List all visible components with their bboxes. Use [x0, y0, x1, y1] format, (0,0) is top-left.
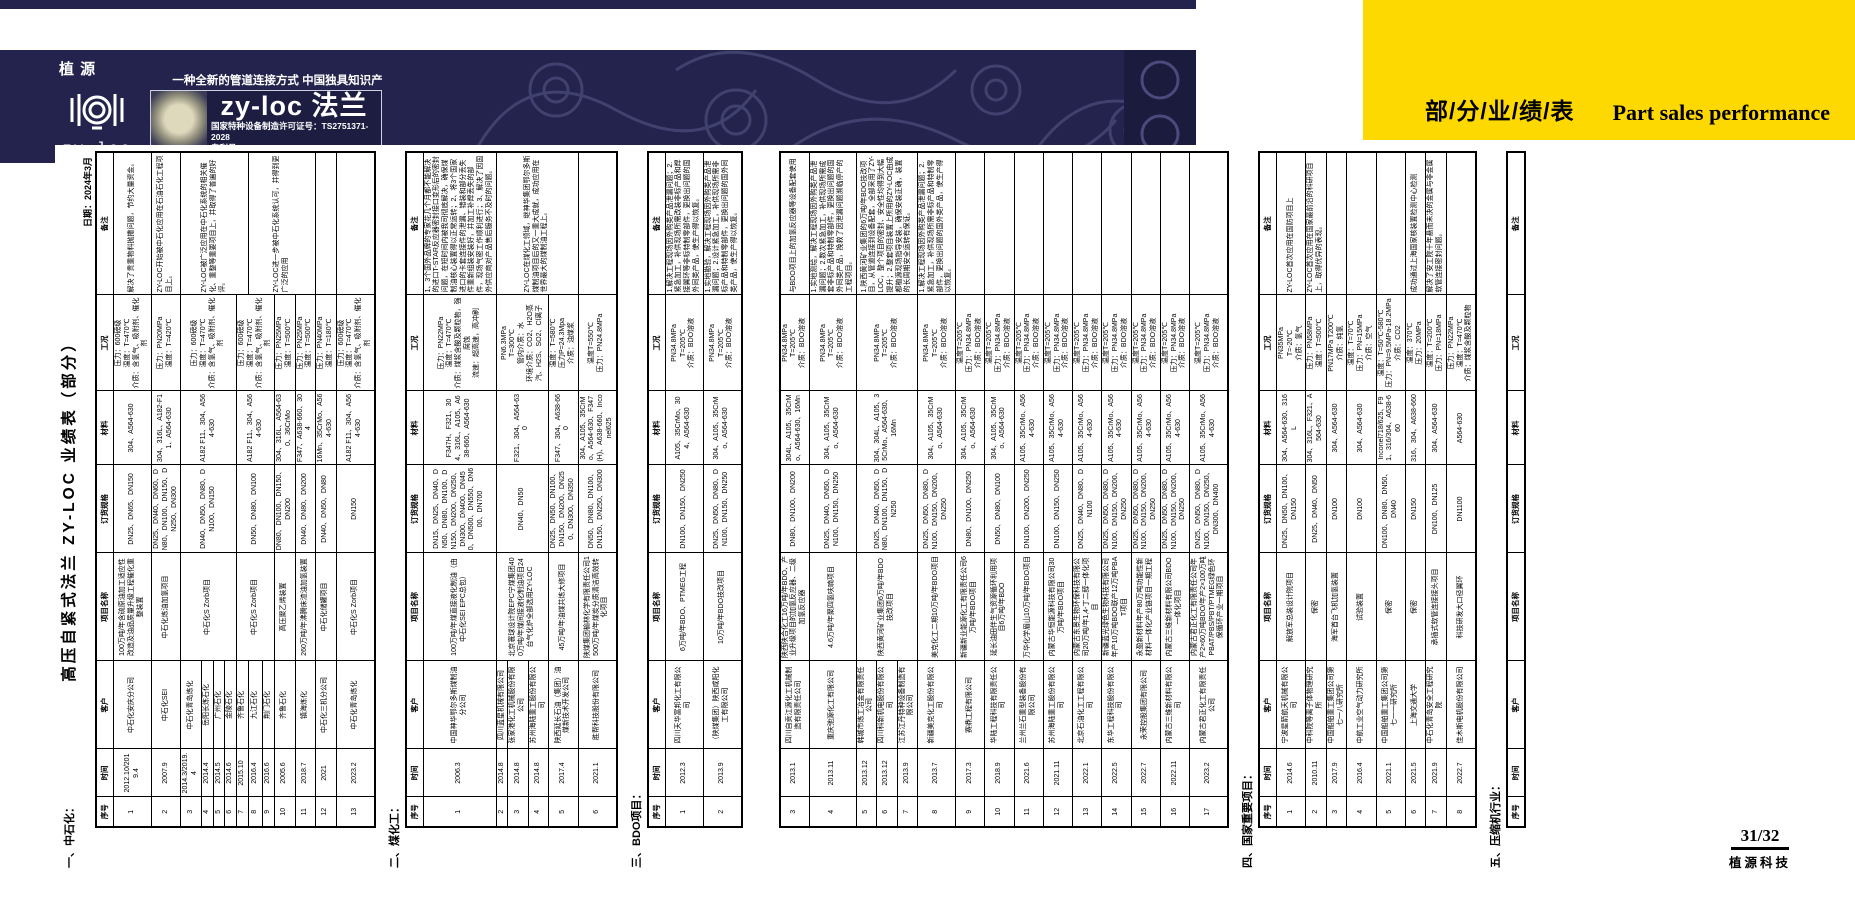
table-row: 172023.2内蒙古君正化工有限责任公司内蒙古君正化工有限责任公司年产2×60… [1190, 152, 1229, 827]
table-cell: 8 [918, 797, 956, 827]
table-cell: PN6.3MPa T=300℃ 管内介质：水 环境介质：CO2、H2O蒸汽、H2… [496, 295, 549, 391]
performance-table-3: 序号时间客户项目名称订货规格材料工况备注12012.3四川天华富邦化工有限公司6… [647, 151, 743, 828]
page: 植 源 zy-loc 一种全新的管道连接方式 中国独具知识产权的产品 zy-lo… [0, 0, 1855, 901]
table-cell: DN100 [1347, 465, 1376, 553]
table-cell: 4 [1347, 797, 1376, 827]
table-cell: 4 [528, 797, 549, 827]
table-cell: DN25、DN50、DN80、DN100、DN150、DN200、DN250 [1131, 465, 1160, 553]
table-cell: 1 [423, 797, 496, 827]
table-cell: A105、35CrMo、A564-630 [1073, 391, 1102, 465]
section-heading-4: 四、国家重要项目： [1239, 145, 1255, 868]
table-cell: 延长油田伴生气资源循环利用项目6万吨/年BDO [985, 553, 1014, 661]
table-cell: 11 [295, 797, 316, 827]
table-cell: 东华工程科技股份有限公司 [1102, 661, 1131, 749]
table-cell: A564-630 [1446, 391, 1476, 465]
table-row: 52021.1中国船舶重工集团公司第七一一研究所保密DN100、DN80、DN5… [1376, 152, 1405, 827]
table-cell: DN25、DN50、DN100、DN150、DN200、DN250、DN300、… [549, 465, 578, 553]
table-cell: PN34.8MPa T=205℃ 介质：BDO溶液 [856, 295, 918, 391]
table-cell: A182 F11、304、A564-630 [181, 391, 237, 465]
table-cell: 2017.9 [1326, 749, 1347, 797]
table-row: 62021.1胜帮科技股份有限公司陕煤集团榆林化学有限责任公司1500万吨/年煤… [578, 152, 617, 827]
column-header: 工况 [648, 295, 666, 391]
column-header: 订货规格 [406, 465, 424, 553]
table-cell: 2014.5 [213, 749, 225, 797]
table-cell: 1.实地测绘，解决工程现场因外购类产品泄漏问题；2.数次紧急加工，补供现场所需成… [809, 152, 856, 295]
table-cell [1326, 152, 1347, 295]
table-cell: 14 [1102, 797, 1131, 827]
section-tab: 部/分/业/绩/表 Part sales performance [1363, 0, 1855, 140]
table-cell: 304、A105、35CrMo、A564-630、F347(H)、A638-66… [578, 391, 617, 465]
table-cell: 与BDO项目上的加氢反应器等设备配套使用 [780, 152, 810, 295]
table-cell: DN50、DN80、DN100 [985, 465, 1014, 553]
table-cell: 齐鲁石化 [237, 661, 249, 749]
table-cell: DN25、DN40、DN60、DN80、DN100、DN150、DN250、DN… [152, 465, 181, 553]
table-cell: 科技研发大口径翼环 [1446, 553, 1476, 661]
table-cell: 2013.1 [780, 749, 810, 797]
table-cell: 8 [248, 797, 263, 827]
performance-table-5: 序号时间客户项目名称订货规格材料工况备注 [1506, 151, 1526, 828]
table-cell: 2022.11 [1160, 749, 1189, 797]
table-cell: 中石化S Zorb项目 [336, 553, 375, 661]
table-cell: DN25、DN40、DN50、DN80、DN100、DN150、DN250 [856, 465, 918, 553]
table-cell: DN100、DN200、DN250 [1014, 465, 1043, 553]
column-header: 项目名称 [1507, 553, 1525, 661]
table-row: 162022.11内蒙古三维新材料有限公司内蒙古三维新材料有限公司BDO一体化项… [1160, 152, 1189, 827]
table-cell: 中石化青岛炼化 [181, 661, 202, 749]
table-cell: 赛鼎工程有限公司 [956, 661, 985, 749]
section-tab-en: Part sales performance [1613, 100, 1830, 126]
table-cell: 304、316L、A564-630、36CrMo [275, 391, 296, 465]
table-cell: DN80、DN100、DN150、DN200 [275, 465, 296, 553]
page-break-gap [745, 145, 779, 870]
table-cell: 压力：PN58MPa 温度：T=500℃ [1306, 295, 1327, 391]
table-cell: 2014.8 [528, 749, 549, 797]
table-cell: 四川天华富邦化工有限公司 [665, 661, 703, 749]
column-header: 项目名称 [1259, 553, 1277, 661]
table-cell: F321、304、A564-630 [496, 391, 549, 465]
table-cell: 17 [1190, 797, 1229, 827]
table-cell: 压力：PN22MPa 温度：T=470℃ 介质：煤浆含酸及颗粒物 [1446, 295, 1476, 391]
table-cell: 温度T=550℃ 压力：PN24.8MPa [578, 295, 617, 391]
table-cell: PN34.8MPa T=205℃ 介质：BDO溶液 [703, 295, 742, 391]
table-cell: 2018.9 [985, 749, 1014, 797]
table-cell: 2013.12 [856, 749, 877, 797]
table-cell: A105、35CrMo、A564-630 [1102, 391, 1131, 465]
table-cell: 2023.2 [1190, 749, 1229, 797]
table-cell: DN15、DN25、DN40、DN50、DN80、DN100、DN150、DN2… [423, 465, 496, 553]
table-cell: 7 [237, 797, 249, 827]
table-cell: 内蒙古君正化工有限责任公司 [1190, 661, 1229, 749]
section-heading-3: 三、BDO项目： [628, 145, 644, 868]
table-cell: 6 [578, 797, 617, 827]
table-cell: 永荣控股集团有限公司 [1131, 661, 1160, 749]
table-cell: （陕煤集团）陕西咸阳化工有限公司 [703, 661, 742, 749]
table-cell: 3 [1326, 797, 1347, 827]
table-cell: DN1100 [1446, 465, 1476, 553]
table-cell: 张家港化工机械股份有限公司 [508, 661, 529, 749]
table-cell: 温度：T=70℃ 压力：PN=15MPa 介质：空气 [1347, 295, 1376, 391]
column-header: 时间 [406, 749, 424, 797]
table-cell: PN34.8MPa T=205℃ 介质：BDO溶液 [780, 295, 810, 391]
table-row: 12014.6宁波星箭航天机械有限公司解放军总装设计院项目DN25、DN50、D… [1277, 152, 1306, 827]
table-cell: 温度T=205℃ 压力：PN34.8MPa 介质：BDO溶液 [1190, 295, 1229, 391]
table-cell: 内蒙古东景生物环保科技有限公司20万吨/年1,4-丁二醇一体化项目 [1073, 553, 1102, 661]
table-cell: 1 [1277, 797, 1306, 827]
header-row: 序号时间客户项目名称订货规格材料工况备注 [1507, 152, 1525, 827]
table-cell: DN25、DN40、DN50 [1306, 465, 1327, 553]
table-cell: 2022.5 [1102, 749, 1131, 797]
table-cell: 苏州海陆重工股份有限公司 [1043, 661, 1072, 749]
table-row: 82013.7新疆美克化工股份有限公司美克化工二期10万吨/年BDO项目DN25… [918, 152, 956, 827]
table-cell: 压力：PN25MPa 温度：T=500℃ [295, 295, 316, 391]
flange-symbol-icon [68, 90, 126, 130]
table-cell: 中国船舶重工集团公司第七一八研究所 [1326, 661, 1347, 749]
table-cell: DN100、DN80、DN50、DN40 [1376, 465, 1405, 553]
table-cell [1347, 152, 1376, 295]
brand-title: zy-loc 法兰 [220, 91, 367, 121]
table-cell: 2013.9 [703, 749, 742, 797]
column-header: 工况 [1259, 295, 1277, 391]
table-cell: Inconel718/625、F91、316/304、A638-660 [1376, 391, 1405, 465]
header-row: 序号时间客户项目名称订货规格材料工况备注 [406, 152, 424, 827]
table-cell: 2014.8 [496, 749, 508, 797]
table-cell: 1.实地勘验，解决工程现场因外购类产品泄漏问题；2.设计紧急加工，补供现场所需非… [703, 152, 742, 295]
table-cell: 45万吨/年油煤共炼大修项目 [549, 553, 578, 661]
table-cell: 岳阳长炼石化 [201, 661, 213, 749]
table-cell: 压力：PN22MPa 温度：T=470℃ 介质：煤浆含酸及颗粒物，强腐蚀 流速：… [423, 295, 496, 391]
table-cell: 中石化S Zorb项目 [237, 553, 275, 661]
table-row: 112021.6兰州兰石重型装备股份有限公司万华化学眉山10万吨/年BDO项目D… [1014, 152, 1043, 827]
table-row: 82022.7佳木斯电机股份有限公司科技研发大口径翼环DN1100A564-63… [1446, 152, 1476, 827]
table-cell: 13 [1073, 797, 1102, 827]
table-cell: 5 [1376, 797, 1405, 827]
table-cell: 2014.3/2019.4 [181, 749, 202, 797]
table-cell: 304、A564-630 [1347, 391, 1376, 465]
table-cell: ZY-LOC首次应用在国防项目上 [1277, 152, 1306, 295]
table-row: 122021.11苏州海陆重工股份有限公司内蒙古华恒能源科技有限公司30万吨/年… [1043, 152, 1072, 827]
table-cell: 6 [225, 797, 237, 827]
table-row: 152022.7永荣控股集团有限公司永盈新材料年产80万吨功能性新材料一体化产业… [1131, 152, 1160, 827]
table-cell: 温度：T=50℃-580℃ 压力：PN=9.5MPa-18.2MPa 介质：CO… [1376, 295, 1405, 391]
table-cell: 6万吨/年BDO、PTMEG工程 [665, 553, 703, 661]
table-cell: 温度T=205℃ 压力：PN34.8MPa 介质：BDO溶液 [1073, 295, 1102, 391]
flange-product-photo [151, 91, 207, 153]
table-cell: 广州石化 [213, 661, 225, 749]
table-cell: 2006.3 [423, 749, 496, 797]
table-cell: DN25、DN50、DN80、DN100、DN150、DN250 [703, 465, 742, 553]
table-cell: 2012.10/2019.4 [114, 749, 152, 797]
table-cell: 保密 [1376, 553, 1405, 661]
table-cell: 解放军总装设计院项目 [1277, 553, 1306, 661]
table-cell [956, 152, 985, 295]
table-cell: DN100 [1326, 465, 1347, 553]
table-cell: 保密 [1306, 553, 1327, 661]
table-cell: 压力：600磅级 温度：T=470℃ 介质：含氢气、吸附剂、催化剂 [336, 295, 375, 391]
table-cell: 陕西黄河矿业集团6万吨/年BDO技改项目 [856, 553, 918, 661]
table-row: 132023.2中石化青岛炼化中石化S Zorb项目DN150A182 F11、… [336, 152, 375, 827]
table-row: 22014.8四川蓝星机械有限公司北京寰球设计院EPC宁煤集团400万吨/年煤间… [496, 152, 508, 827]
table-cell: 温度：370℃ 压力：20MPa [1405, 295, 1426, 391]
table-cell: 10 [275, 797, 296, 827]
table-cell: 解决了贵重物料抛撒问题，节约大量资金。 [114, 152, 152, 295]
table-cell: 2014.4 [201, 749, 213, 797]
header-row: 序号时间客户项目名称订货规格材料工况备注 [648, 152, 666, 827]
table-cell: 兰州兰石重型装备股份有限公司 [1014, 661, 1043, 749]
table-cell: 四川自贡江源化工机械制造有限责任公司 [780, 661, 810, 749]
header-row: 序号时间客户项目名称订货规格材料工况备注 [1259, 152, 1277, 827]
table-cell: 1、3个国外品牌的专家花几个月都不能解决的进口T-STAR反应器密封接口变形后的… [423, 152, 496, 295]
table-cell: 316、304、A638-660 [1405, 391, 1426, 465]
table-cell: 2014.8 [508, 749, 529, 797]
table-cell: PN34.8MPa T=205℃ 介质：BDO溶液 [809, 295, 856, 391]
column-header: 备注 [648, 152, 666, 295]
table-cell: 中石化三机分公司 [316, 661, 337, 749]
table-row: 92017.3赛鼎工程有限公司新疆新业能源化工有限责任公司6万吨/年BDO项目D… [956, 152, 985, 827]
table-cell: 304、A564-630 [114, 391, 152, 465]
table-cell: 5 [549, 797, 578, 827]
table-cell: 韩城市炼工冶金有限责任公司 [856, 661, 877, 749]
section-heading-5: 五、压缩机行业： [1487, 145, 1503, 868]
table-cell: 温度T=205℃ 压力：PN34.8MPa 介质：BDO溶液 [1043, 295, 1072, 391]
tables-container: 序号时间客户项目名称订货规格材料工况备注12012.10/2019.4中石化安庆… [95, 145, 1526, 870]
table-cell: PN35MPa T=-20℃ 介质：氢气 [1277, 295, 1306, 391]
table-cell: 压力：600磅级 温度：T=470℃ 介质：含氢气、吸附剂、催化剂 [114, 295, 152, 391]
page-number: 31/32 [1731, 826, 1790, 850]
table-row: 132022.1北京石油化工工程有限公司内蒙古东景生物环保科技有限公司20万吨/… [1073, 152, 1102, 827]
table-cell: 304L、A105、35CrMo、A564-630、16Mn [780, 391, 810, 465]
performance-table-2: 序号时间客户项目名称订货规格材料工况备注12006.3中国神华鄂尔多斯煤制油分公… [405, 151, 618, 828]
table-cell: 中石化青岛安全工程研究院 [1426, 661, 1447, 749]
table-cell: 荆门石化 [263, 661, 275, 749]
column-header: 时间 [96, 749, 114, 797]
table-cell: 压力：600磅级 温度：T=470℃ 介质：含氢气、吸附剂、催化剂 [181, 295, 237, 391]
table-cell [1131, 152, 1160, 295]
table-cell: DN80、DN100、DN200 [780, 465, 810, 553]
document-canvas: 一、中石化： 高压自紧式法兰 ZY-LOC 业绩表（部分） 日期：2024年3月… [55, 145, 1850, 870]
table-cell [1190, 152, 1229, 295]
column-header: 客户 [96, 661, 114, 749]
table-cell [1446, 152, 1476, 295]
table-cell: A182 F11、304、A564-630 [237, 391, 275, 465]
table-cell: 304、A564-630 [1326, 391, 1347, 465]
section-heading-2: 二、煤化工： [386, 145, 402, 868]
table-cell: 承插式软管连接接头项目 [1426, 553, 1447, 661]
table-cell: 压力：600磅级 温度：T=470℃ 介质：含氢气、吸附剂、催化剂 [237, 295, 275, 391]
table-cell: 2 [1306, 797, 1327, 827]
table-cell: 2021 [316, 749, 337, 797]
table-cell: 304、A105、35CrMo、A564-630 [956, 391, 985, 465]
table-cell: 304、A564-630、316L [1277, 391, 1306, 465]
table-row: 12012.10/2019.4中石化安庆分公司100万吨/年含硫原油加工适应性改… [114, 152, 152, 827]
table-cell: 2013.12 [877, 749, 898, 797]
table-cell: 8 [1446, 797, 1476, 827]
table-cell: 温度T=205℃ 压力：PN34.8MPa 介质：BDO溶液 [956, 295, 985, 391]
table-cell: DN80、DN100、DN250 [956, 465, 985, 553]
table-cell: DN100、DN125 [1426, 465, 1447, 553]
table-cell: 5 [213, 797, 225, 827]
table-cell: 2014.6 [1277, 749, 1306, 797]
table-cell: 内蒙古三维新材料有限公司BDO一体化项目 [1160, 553, 1189, 661]
table-cell: 4 [809, 797, 856, 827]
table-cell: 四川科新机电股份有限公司 [877, 661, 898, 749]
table-cell: 12 [316, 797, 337, 827]
license-line: 国家特种设备制造许可证号：TS2751371-2028 [207, 121, 381, 143]
column-header: 序号 [406, 797, 424, 827]
top-edge-strip [0, 0, 1196, 9]
table-cell: 2021.1 [578, 749, 617, 797]
table-cell: DN40、DN80、DN200 [295, 465, 316, 553]
table-cell: 江苏江丹特种设备制造有限公司 [897, 661, 918, 749]
table-cell: 温度T=205℃ 压力：PN34.8MPa 介质：BDO溶液 [985, 295, 1014, 391]
table-cell: 1.解决工程现场因外购类产品泄漏问题；2.紧急加工，补供现场所需改装非标产品和焊… [665, 152, 703, 295]
table-cell: DN25、DN40、DN50、DN100、DN150、DN250 [809, 465, 856, 553]
table-cell: 2021.11 [1043, 749, 1072, 797]
table-cell: 宁波星箭航天机械有限公司 [1277, 661, 1306, 749]
column-header: 客户 [1259, 661, 1277, 749]
column-header: 项目名称 [406, 553, 424, 661]
column-header: 工况 [406, 295, 424, 391]
table-cell: 新疆美克化工股份有限公司 [918, 661, 956, 749]
table-row: 42013.11重庆弛源化工有限公司4.6万吨/年聚四氢呋喃项目DN25、DN4… [809, 152, 856, 827]
table-cell: 2021.9 [1426, 749, 1447, 797]
table-cell: 100万吨/年煤直接液化制油（由中石化SEI EPC总包） [423, 553, 496, 661]
table-row: 22007.9中石化SEI中石化炼油加氢项目DN25、DN40、DN60、DN8… [152, 152, 181, 827]
column-header: 工况 [96, 295, 114, 391]
table-cell: DN25、DN50、DN80、DN100、DN150、DN200、DN250 [1102, 465, 1131, 553]
table-cell: A105、35CrMo、A564-630 [1014, 391, 1043, 465]
table-cell: 1 [665, 797, 703, 827]
table-cell: 260万吨/年沸腾床渣油加氢装置 [295, 553, 316, 661]
table-cell: 温度T=205℃ 压力：PN34.8MPa 介质：BDO溶液 [1131, 295, 1160, 391]
column-header: 订货规格 [96, 465, 114, 553]
table-cell: 7 [1426, 797, 1447, 827]
table-cell: 上海交通大学 [1405, 661, 1426, 749]
column-header: 备注 [406, 152, 424, 295]
logo-cn-text: 植 源 [59, 58, 135, 79]
table-cell: PN34.8MPa T=205℃ 介质：BDO溶液 [665, 295, 703, 391]
column-header: 备注 [1259, 152, 1277, 295]
table-cell: 美克化工二期10万吨/年BDO项目 [918, 553, 956, 661]
table-cell: 2022.7 [1131, 749, 1160, 797]
table-cell: 九江石化 [248, 661, 263, 749]
table-cell: ZY-LOC开始被中石化应用在石油石化工程项目上。 [152, 152, 181, 295]
table-cell [578, 152, 617, 295]
table-cell: 镇海炼化 [295, 661, 316, 749]
table-row: 32017.9中国船舶重工集团公司第七一八研究所海军首台飞机加氢装置DN1003… [1326, 152, 1347, 827]
column-header: 时间 [1507, 749, 1525, 797]
column-header: 工况 [1507, 295, 1525, 391]
table-row: 12012.3四川天华富邦化工有限公司6万吨/年BDO、PTMEG工程DN100… [665, 152, 703, 827]
table-cell: 中国神华鄂尔多斯煤制油分公司 [423, 661, 496, 749]
table-cell: 2017.3 [956, 749, 985, 797]
table-cell: 304、A105、35CrMo、A564-630 [985, 391, 1014, 465]
table-cell: 保密 [1405, 553, 1426, 661]
table-cell: 3 [181, 797, 202, 827]
table-cell [1043, 152, 1072, 295]
table-cell: 2018.7 [295, 749, 316, 797]
table-cell: 温度T=205℃ 压力：PN34.8MPa 介质：BDO溶液 [1160, 295, 1189, 391]
table-row: 22010.11中科院等离子体物理研究所保密DN25、DN40、DN50304、… [1306, 152, 1327, 827]
table-cell [1073, 152, 1102, 295]
table-cell: DN100、DN150、DN250 [665, 465, 703, 553]
table-row: 62021.5上海交通大学保密DN150316、304、A638-660温度：3… [1405, 152, 1426, 827]
table-cell: 2 [703, 797, 742, 827]
column-header: 材料 [1259, 391, 1277, 465]
table-cell: DN25、DN40、DN80、DN100 [1073, 465, 1102, 553]
table-cell: 2007.9 [152, 749, 181, 797]
table-cell: 内蒙古华恒能源科技有限公司30万吨/年BDO项目 [1043, 553, 1072, 661]
table-cell: F347、304、A638-660 [549, 391, 578, 465]
table-cell: 解决了安工院十年悬而未决的金属与非金属软管连接密封问题。 [1426, 152, 1447, 295]
table-cell: 内蒙古君正化工有限责任公司年产2×60万吨BDO/年产2×100万吨PBAT/P… [1190, 553, 1229, 661]
table-cell: DN40、DN50 [496, 465, 549, 553]
table-cell: 中石化炼油加氢项目 [152, 553, 181, 661]
table-cell: 2012.3 [665, 749, 703, 797]
table-cell: 压力：PN40MPa 温度：T=180℃ [316, 295, 337, 391]
table-cell: ZY-LOC在煤化工领域，继神华集团鄂尔多斯煤制油项目后的又一重大成就，成功应用… [496, 152, 578, 295]
table-cell: 11 [1014, 797, 1043, 827]
table-cell: PN17MPa T200℃ 介质：纯氢 [1326, 295, 1347, 391]
table-cell: A105、35CrMo、A564-630 [1043, 391, 1072, 465]
table-cell: 6 [1405, 797, 1426, 827]
table-cell: 陕西陕合化工16万吨/年BDO、产业升级项目的加氢反应器、二级加氢反应器 [780, 553, 810, 661]
table-cell: 5 [856, 797, 877, 827]
document-title: 高压自紧式法兰 ZY-LOC 业绩表（部分） [57, 145, 79, 870]
table-cell: 内蒙古三维新材料有限公司 [1160, 661, 1189, 749]
table-cell: 304、316L、F321、A564-630 [1306, 391, 1327, 465]
table-cell: 2005.6 [275, 749, 296, 797]
column-header: 订货规格 [648, 465, 666, 553]
column-header: 订货规格 [1259, 465, 1277, 553]
table-cell: 温度T=205℃ 压力：PN34.8MPa 介质：BDO溶液 [1014, 295, 1043, 391]
table-row: 22013.9（陕煤集团）陕西咸阳化工有限公司10万吨/年BDO技改项目DN25… [703, 152, 742, 827]
table-row: 52013.12韩城市炼工冶金有限责任公司陕西黄河矿业集团6万吨/年BDO技改项… [856, 152, 877, 827]
table-cell: DN150 [336, 465, 375, 553]
table-cell: 100万吨/年含硫原油加工适应性改造及油品质量升级工程催化重整装置 [114, 553, 152, 661]
table-cell: 16Mn、35CrMo、A564-630 [316, 391, 337, 465]
table-cell: 9 [956, 797, 985, 827]
table-cell: 北京寰球设计院EPC宁煤集团400万吨/年煤间接液化制油项目24台气化炉全部选用… [496, 553, 549, 661]
table-cell: 2013.11 [809, 749, 856, 797]
table-cell: 压力：PN20MPa 温度：T=420℃ [152, 295, 181, 391]
table-cell: 陕西延长石油（集团）油煤新技术开发公司 [549, 661, 578, 749]
table-row: 142022.5东华工程科技股份有限公司新疆蓝光绿色生物科技有限公司年产10万吨… [1102, 152, 1131, 827]
table-cell: 2021.1 [1376, 749, 1405, 797]
table-cell: 15 [1131, 797, 1160, 827]
table-cell: 3 [508, 797, 529, 827]
table-cell: DN25、DN50、DN100、DN150 [1277, 465, 1306, 553]
table-cell: A105、35CrMo、A564-630 [1160, 391, 1189, 465]
table-cell: 2 [496, 797, 508, 827]
table-cell: 新疆蓝光绿色生物科技有限公司年产10万吨BDO联产12万吨PBAT项目 [1102, 553, 1131, 661]
table-cell: 2016.4 [248, 749, 263, 797]
table-cell: 7 [897, 797, 918, 827]
table-cell: 华陆工程科技有限责任公司 [985, 661, 1014, 749]
table-cell: DN50、DN80、DN100 [237, 465, 275, 553]
column-header: 客户 [1507, 661, 1525, 749]
table-cell: 2010.11 [1306, 749, 1327, 797]
column-header: 序号 [96, 797, 114, 827]
table-cell: 304、A105、35CrMo、A564-630 [809, 391, 856, 465]
table-cell [1160, 152, 1189, 295]
table-cell: 2023.2 [336, 749, 375, 797]
table-cell: 2013.9 [897, 749, 918, 797]
table-cell: ZY-LOC首次应用在国家最前沿的科研项目上，取得优异的表现。 [1306, 152, 1327, 295]
table-cell: 佳木斯电机股份有限公司 [1446, 661, 1476, 749]
table-cell: 1.陕西黄河矿业集团的6万吨/年BDO技改项目，从管道连接到设备配套，全部采用了… [856, 152, 918, 295]
table-cell: 2017.4 [549, 749, 578, 797]
table-row: 42016.4中航工业空气动力研究所试验装置DN100304、A564-630温… [1347, 152, 1376, 827]
